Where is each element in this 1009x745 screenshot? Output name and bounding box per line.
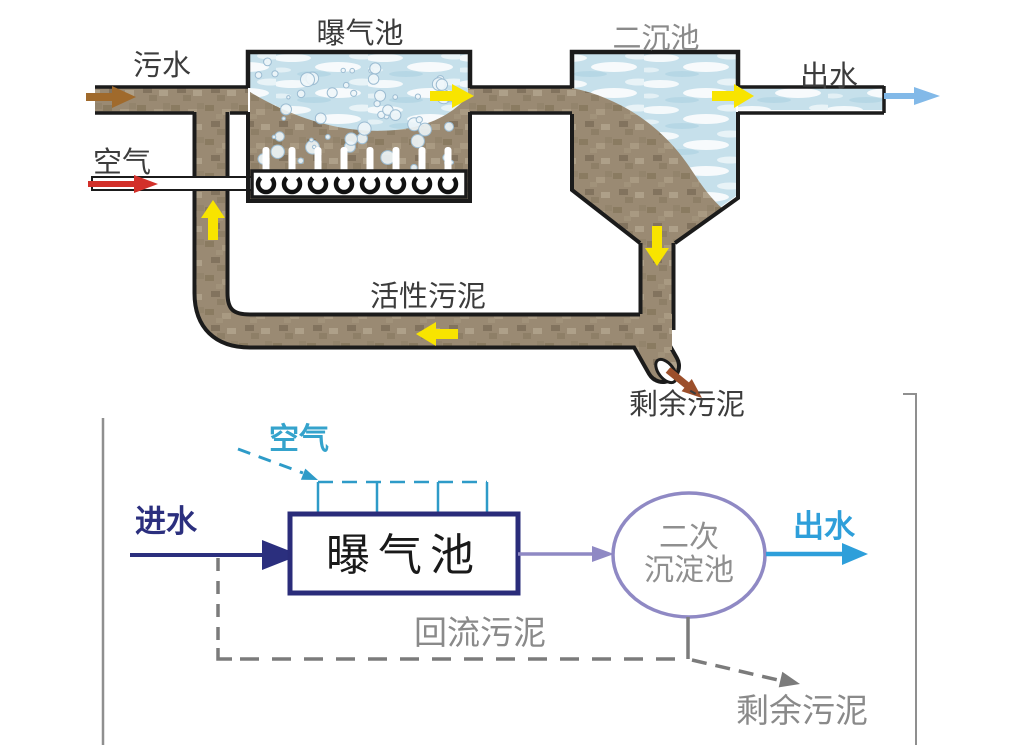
frame-right-border	[903, 394, 916, 745]
bubble	[301, 73, 315, 87]
bubble	[345, 133, 357, 145]
bubble	[325, 135, 330, 140]
bubble	[350, 68, 355, 73]
influent-flow: 进水	[130, 504, 300, 570]
return-sludge-corner	[218, 648, 232, 659]
air-arrowhead	[301, 469, 318, 480]
connector-sludge	[468, 88, 574, 112]
bubble	[351, 90, 357, 96]
bubble	[310, 138, 314, 142]
bubble	[272, 135, 276, 139]
bubble	[281, 104, 292, 115]
bubble	[343, 82, 349, 88]
connector-channel	[468, 87, 574, 113]
bubble	[297, 90, 305, 98]
bubble	[282, 117, 286, 121]
pipe-junction-sludge	[640, 314, 672, 350]
return-sludge-label: 回流污泥	[414, 614, 546, 651]
aeration-tank-label: 曝气池	[316, 17, 403, 50]
bubble	[327, 88, 337, 98]
bubble	[275, 132, 284, 141]
bubble	[393, 95, 398, 100]
bubble	[375, 90, 386, 101]
bubble	[255, 72, 262, 79]
influent-label-bottom: 进水	[135, 504, 198, 539]
secondary-clarifier-circle: 二次 沉淀池	[613, 493, 765, 617]
activated-sludge-process-figure: 曝气池 二沉池 污水 出水 空气 活性污泥 剩余污泥 空气 进水	[0, 0, 1009, 745]
effluent-label-bottom: 出水	[793, 509, 856, 544]
bubble	[358, 122, 371, 135]
bubble	[264, 58, 272, 66]
effluent-label: 出水	[800, 60, 858, 93]
effluent-flow: 出水	[766, 509, 868, 565]
excess-sludge-dashed	[692, 660, 778, 680]
tank-to-clarifier-arrowhead	[592, 546, 614, 562]
effluent-arrowhead	[842, 543, 868, 565]
bubble	[436, 79, 447, 90]
clarifier-label-line2: 沉淀池	[644, 554, 734, 587]
bubble	[368, 74, 378, 84]
bubble	[416, 117, 422, 123]
effluent-arrow	[884, 87, 940, 105]
excess-sludge-arrowhead-bottom	[779, 672, 800, 688]
aeration-tank-box-label: 曝气池	[326, 531, 482, 580]
bubble	[374, 101, 380, 107]
excess-sludge-label: 剩余污泥	[629, 388, 745, 421]
bubble	[272, 71, 278, 77]
bubble	[445, 122, 454, 131]
secondary-clarifier-label: 二沉池	[612, 22, 699, 55]
air-feed: 空气	[238, 423, 487, 514]
bottom-diagram: 空气 进水 曝气池 二次 沉淀池 出水	[103, 394, 916, 745]
bubble	[315, 113, 326, 124]
bubble	[390, 110, 401, 121]
air-label: 空气	[93, 146, 151, 179]
activated-sludge-label: 活性污泥	[370, 280, 486, 313]
process-diagram-svg: 曝气池 二沉池 污水 出水 空气 活性污泥 剩余污泥 空气 进水	[0, 0, 1009, 745]
air-manifold	[318, 482, 487, 514]
bubble	[298, 158, 304, 164]
bubble	[341, 68, 345, 72]
excess-sludge-label-bottom: 剩余污泥	[736, 692, 868, 729]
bubble	[411, 135, 424, 148]
bubble	[271, 145, 284, 158]
bubble	[419, 123, 432, 136]
air-label-bottom: 空气	[269, 423, 329, 456]
bubble	[415, 94, 420, 99]
top-diagram: 曝气池 二沉池 污水 出水 空气 活性污泥 剩余污泥	[86, 17, 940, 421]
aeration-tank-box: 曝气池	[290, 514, 518, 593]
bubble	[287, 96, 290, 99]
clarifier-label-line1: 二次	[659, 521, 719, 554]
influent-label: 污水	[133, 49, 191, 82]
bubble	[370, 63, 381, 74]
